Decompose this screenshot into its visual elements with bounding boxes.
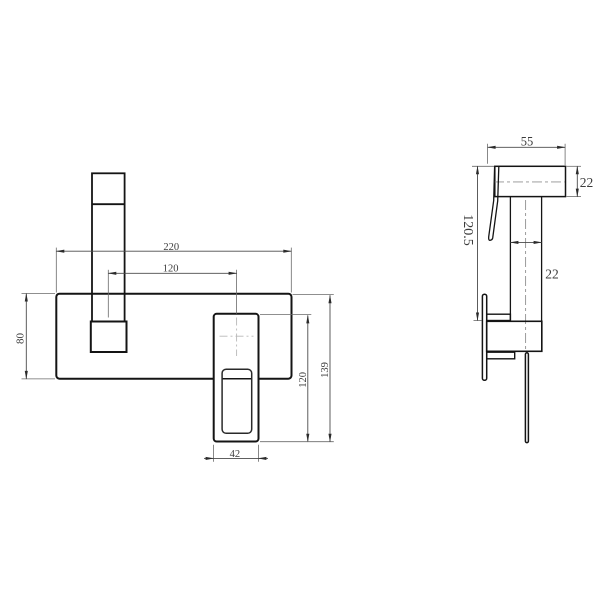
svg-text:120: 120 <box>298 372 309 388</box>
svg-text:42: 42 <box>230 449 241 460</box>
svg-text:120: 120 <box>163 264 179 275</box>
svg-text:80: 80 <box>15 333 27 345</box>
svg-text:22: 22 <box>545 266 559 281</box>
svg-text:220: 220 <box>163 242 179 253</box>
svg-text:139: 139 <box>320 362 331 378</box>
svg-text:55: 55 <box>521 134 534 148</box>
svg-text:22: 22 <box>580 175 594 190</box>
svg-text:120.5: 120.5 <box>460 214 475 246</box>
